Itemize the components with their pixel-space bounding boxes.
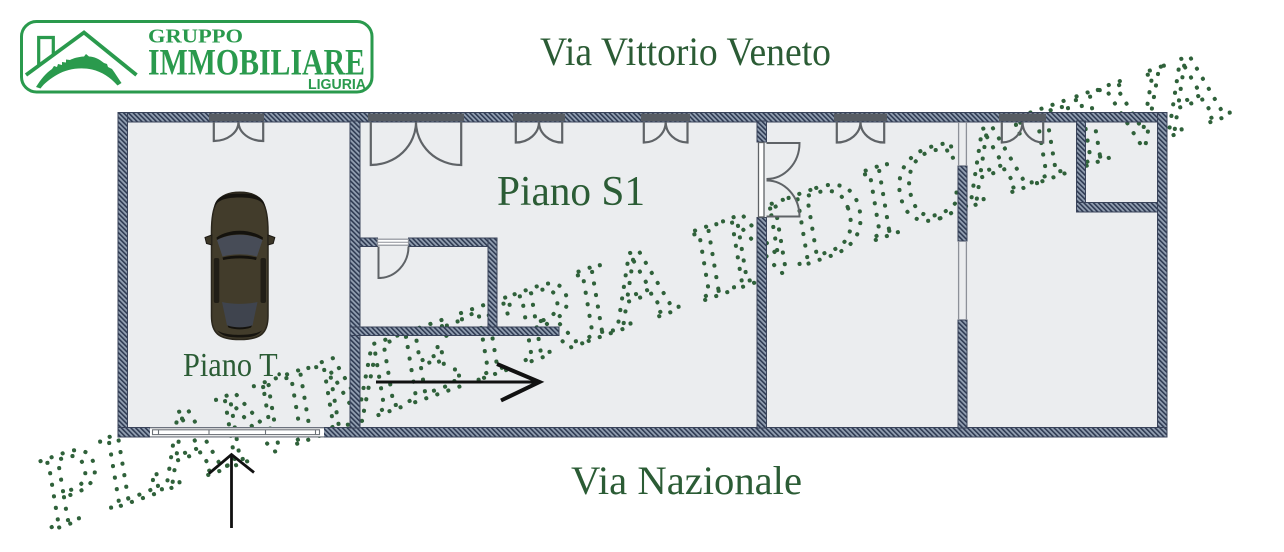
- svg-text:Via Vittorio Veneto: Via Vittorio Veneto: [540, 29, 831, 74]
- svg-text:Piano T.: Piano T.: [183, 347, 283, 384]
- svg-text:Piano S1: Piano S1: [497, 169, 645, 215]
- svg-text:LIGURIA: LIGURIA: [308, 77, 367, 93]
- svg-text:Via Nazionale: Via Nazionale: [571, 458, 802, 503]
